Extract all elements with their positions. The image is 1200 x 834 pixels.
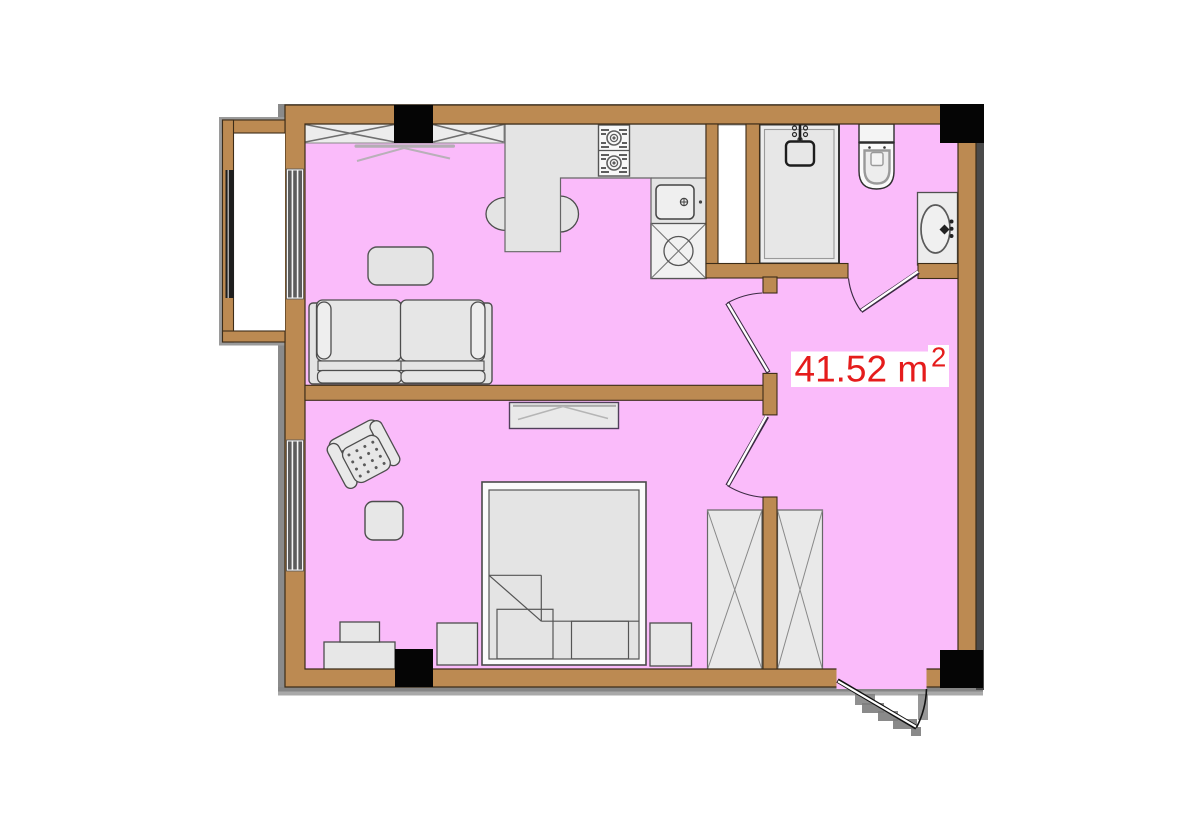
svg-text:2: 2	[931, 342, 946, 373]
svg-text:41.52 m: 41.52 m	[795, 349, 929, 390]
